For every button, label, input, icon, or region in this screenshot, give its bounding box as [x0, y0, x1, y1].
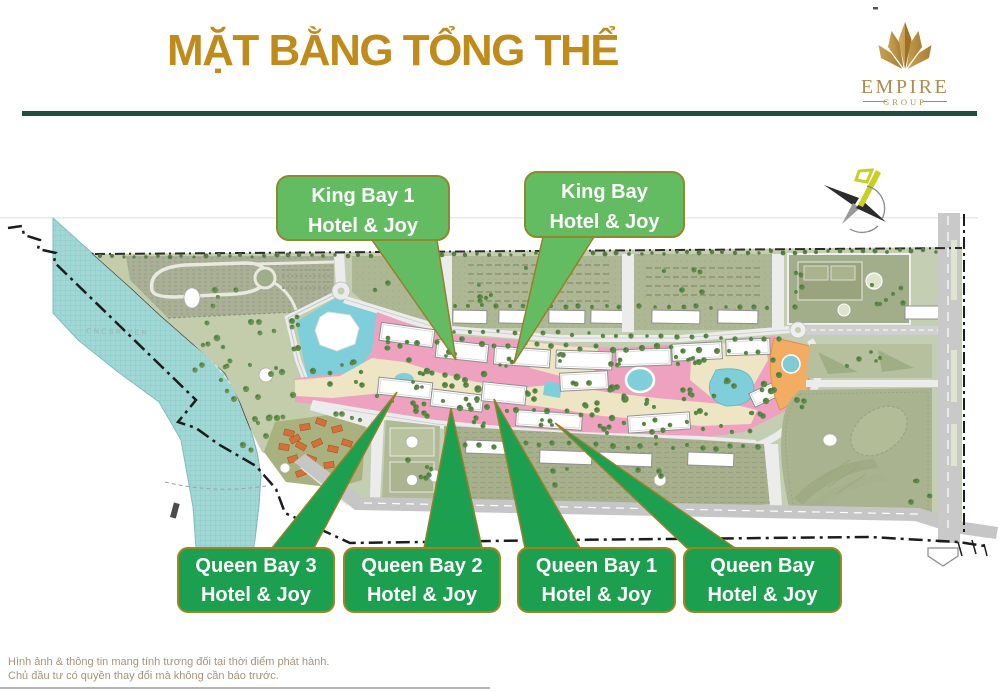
svg-text:EMPIRE: EMPIRE — [861, 76, 949, 98]
svg-text:GROUP: GROUP — [883, 97, 927, 107]
